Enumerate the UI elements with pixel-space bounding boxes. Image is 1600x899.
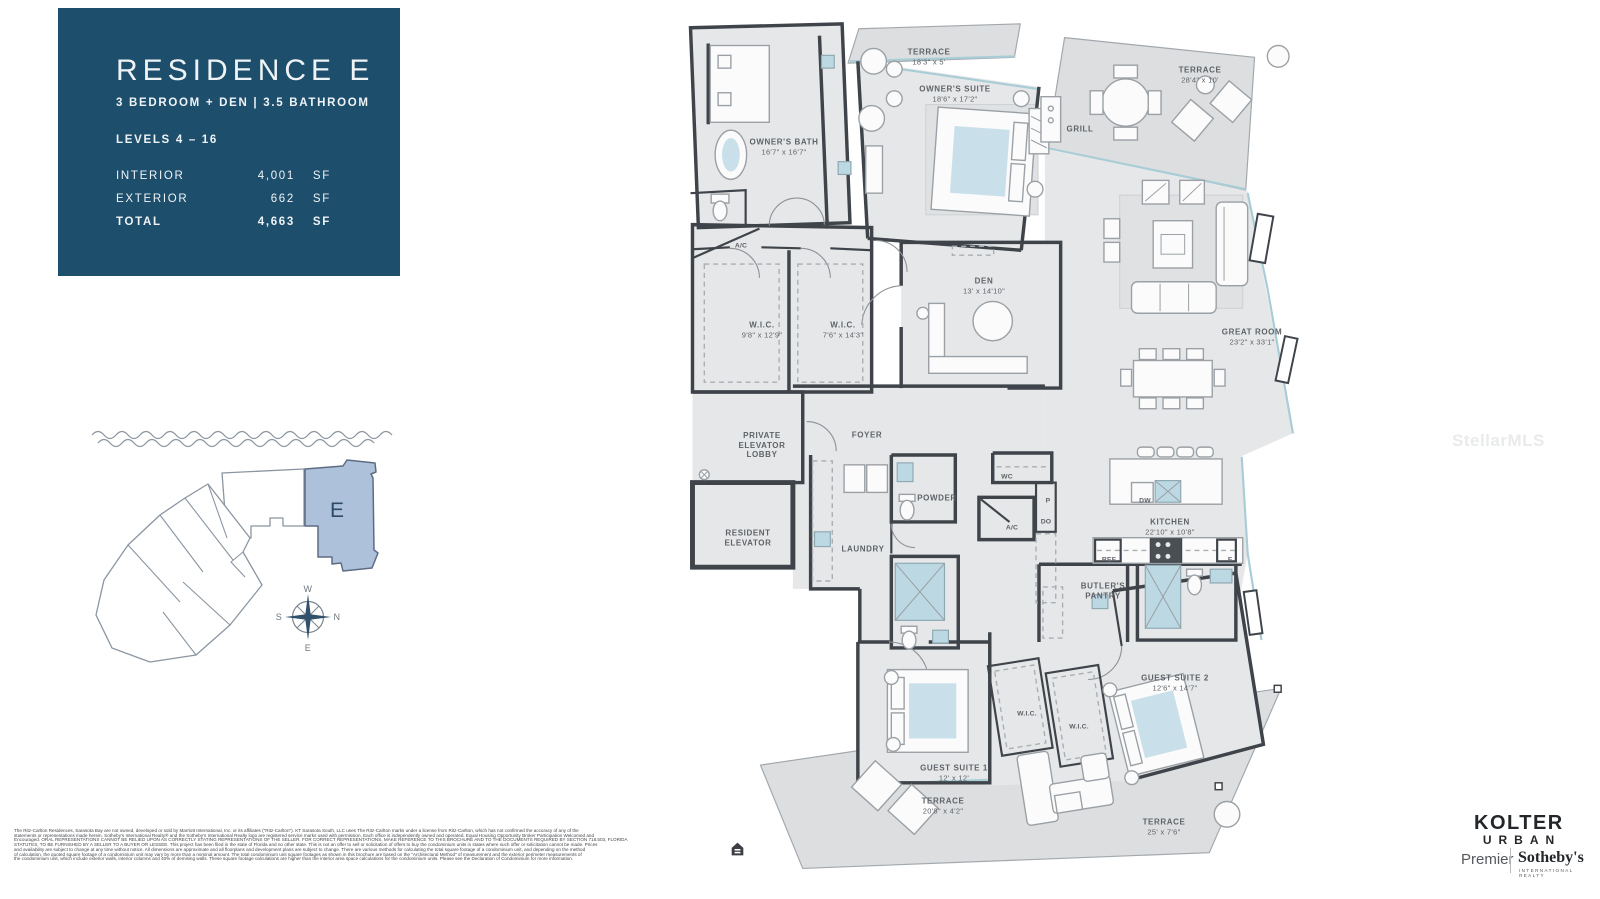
compass-w: W: [304, 584, 313, 594]
building-footprint: [96, 469, 304, 662]
area-row-interior: INTERIOR 4,001 SF: [116, 170, 331, 182]
area-unit: SF: [295, 193, 331, 205]
area-value: 4,663: [233, 216, 295, 228]
kolter-urban-logo: URBAN: [1474, 833, 1570, 847]
area-value: 4,001: [233, 170, 295, 182]
sothebys-logo: Sotheby's: [1518, 849, 1584, 867]
residence-subtitle: 3 BEDROOM + DEN | 3.5 BATHROOM: [116, 97, 400, 109]
area-label: TOTAL: [116, 216, 233, 228]
equal-housing-icon: [731, 842, 744, 856]
area-value: 662: [233, 193, 295, 205]
unit-e-letter: E: [330, 499, 344, 522]
site-key-map: E W S N E: [85, 420, 400, 670]
compass-rose: W S N E: [276, 584, 341, 653]
disclaimer-line: the condominium unit, which include exte…: [14, 857, 728, 862]
kolter-logo: KOLTER: [1474, 812, 1562, 835]
sothebys-sub-label: INTERNATIONAL REALTY: [1519, 868, 1600, 878]
area-label: EXTERIOR: [116, 193, 233, 205]
watermark: StellarMLS: [1452, 431, 1545, 451]
floor-plan-svg: [640, 14, 1310, 896]
area-table: INTERIOR 4,001 SF EXTERIOR 662 SF TOTAL …: [116, 170, 331, 228]
compass-e: E: [305, 643, 312, 653]
logo-divider: [1510, 848, 1511, 873]
residence-info-panel: RESIDENCE E 3 BEDROOM + DEN | 3.5 BATHRO…: [58, 8, 400, 276]
page-title: RESIDENCE E: [116, 54, 400, 88]
area-row-total: TOTAL 4,663 SF: [116, 216, 331, 228]
levels-label: LEVELS 4 – 16: [116, 134, 400, 146]
area-label: INTERIOR: [116, 170, 233, 182]
compass-n: N: [334, 612, 341, 622]
area-unit: SF: [295, 216, 331, 228]
legal-disclaimer: The Ritz-Carlton Residences, Sarasota Ba…: [14, 829, 728, 862]
compass-s: S: [276, 612, 283, 622]
premier-logo: Premier: [1461, 851, 1514, 868]
area-unit: SF: [295, 170, 331, 182]
brochure-page: RESIDENCE E 3 BEDROOM + DEN | 3.5 BATHRO…: [0, 0, 1600, 899]
area-row-exterior: EXTERIOR 662 SF: [116, 193, 331, 205]
